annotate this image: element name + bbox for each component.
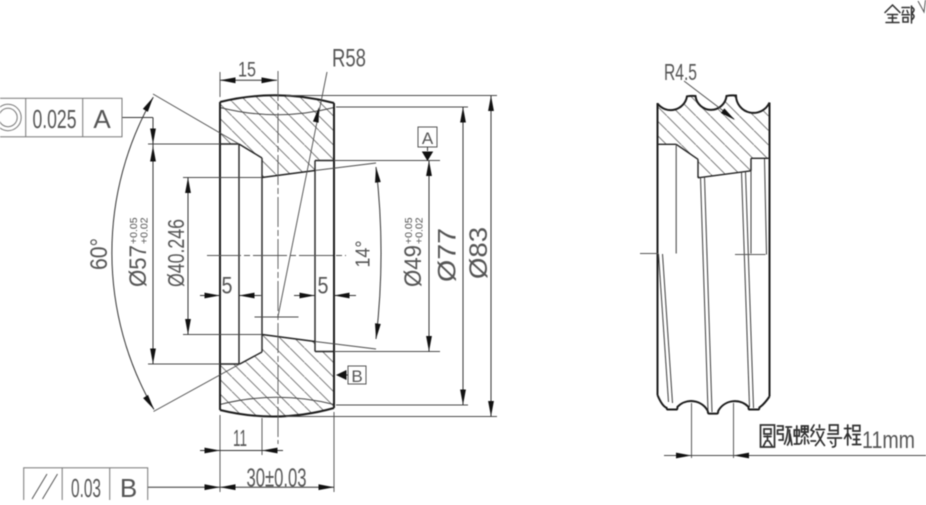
svg-text:Ø57: Ø57 (125, 245, 152, 287)
svg-text:Ø40.246: Ø40.246 (163, 219, 189, 287)
svg-text:15: 15 (238, 59, 256, 82)
svg-text:R58: R58 (332, 45, 366, 73)
svg-text:B: B (351, 367, 362, 386)
svg-text:5: 5 (222, 273, 233, 300)
svg-text:5: 5 (318, 273, 329, 300)
svg-text:Ø49: Ø49 (400, 245, 427, 287)
svg-text:11mm: 11mm (862, 427, 915, 454)
svg-text:+0.02: +0.02 (414, 217, 426, 244)
svg-text:A: A (93, 104, 111, 134)
svg-text:Ø83: Ø83 (465, 227, 493, 279)
svg-text:R4.5: R4.5 (664, 59, 697, 85)
svg-text:30±0.03: 30±0.03 (247, 463, 307, 493)
svg-text:+0.02: +0.02 (139, 217, 151, 244)
svg-text:0.025: 0.025 (33, 104, 77, 134)
svg-text:0.03: 0.03 (71, 473, 101, 500)
svg-text:A: A (422, 129, 434, 148)
svg-text:Ø77: Ø77 (434, 228, 462, 282)
svg-text:B: B (120, 473, 137, 500)
svg-text:14°: 14° (353, 241, 375, 268)
svg-text:11: 11 (233, 425, 247, 451)
svg-text:60°: 60° (86, 238, 113, 270)
